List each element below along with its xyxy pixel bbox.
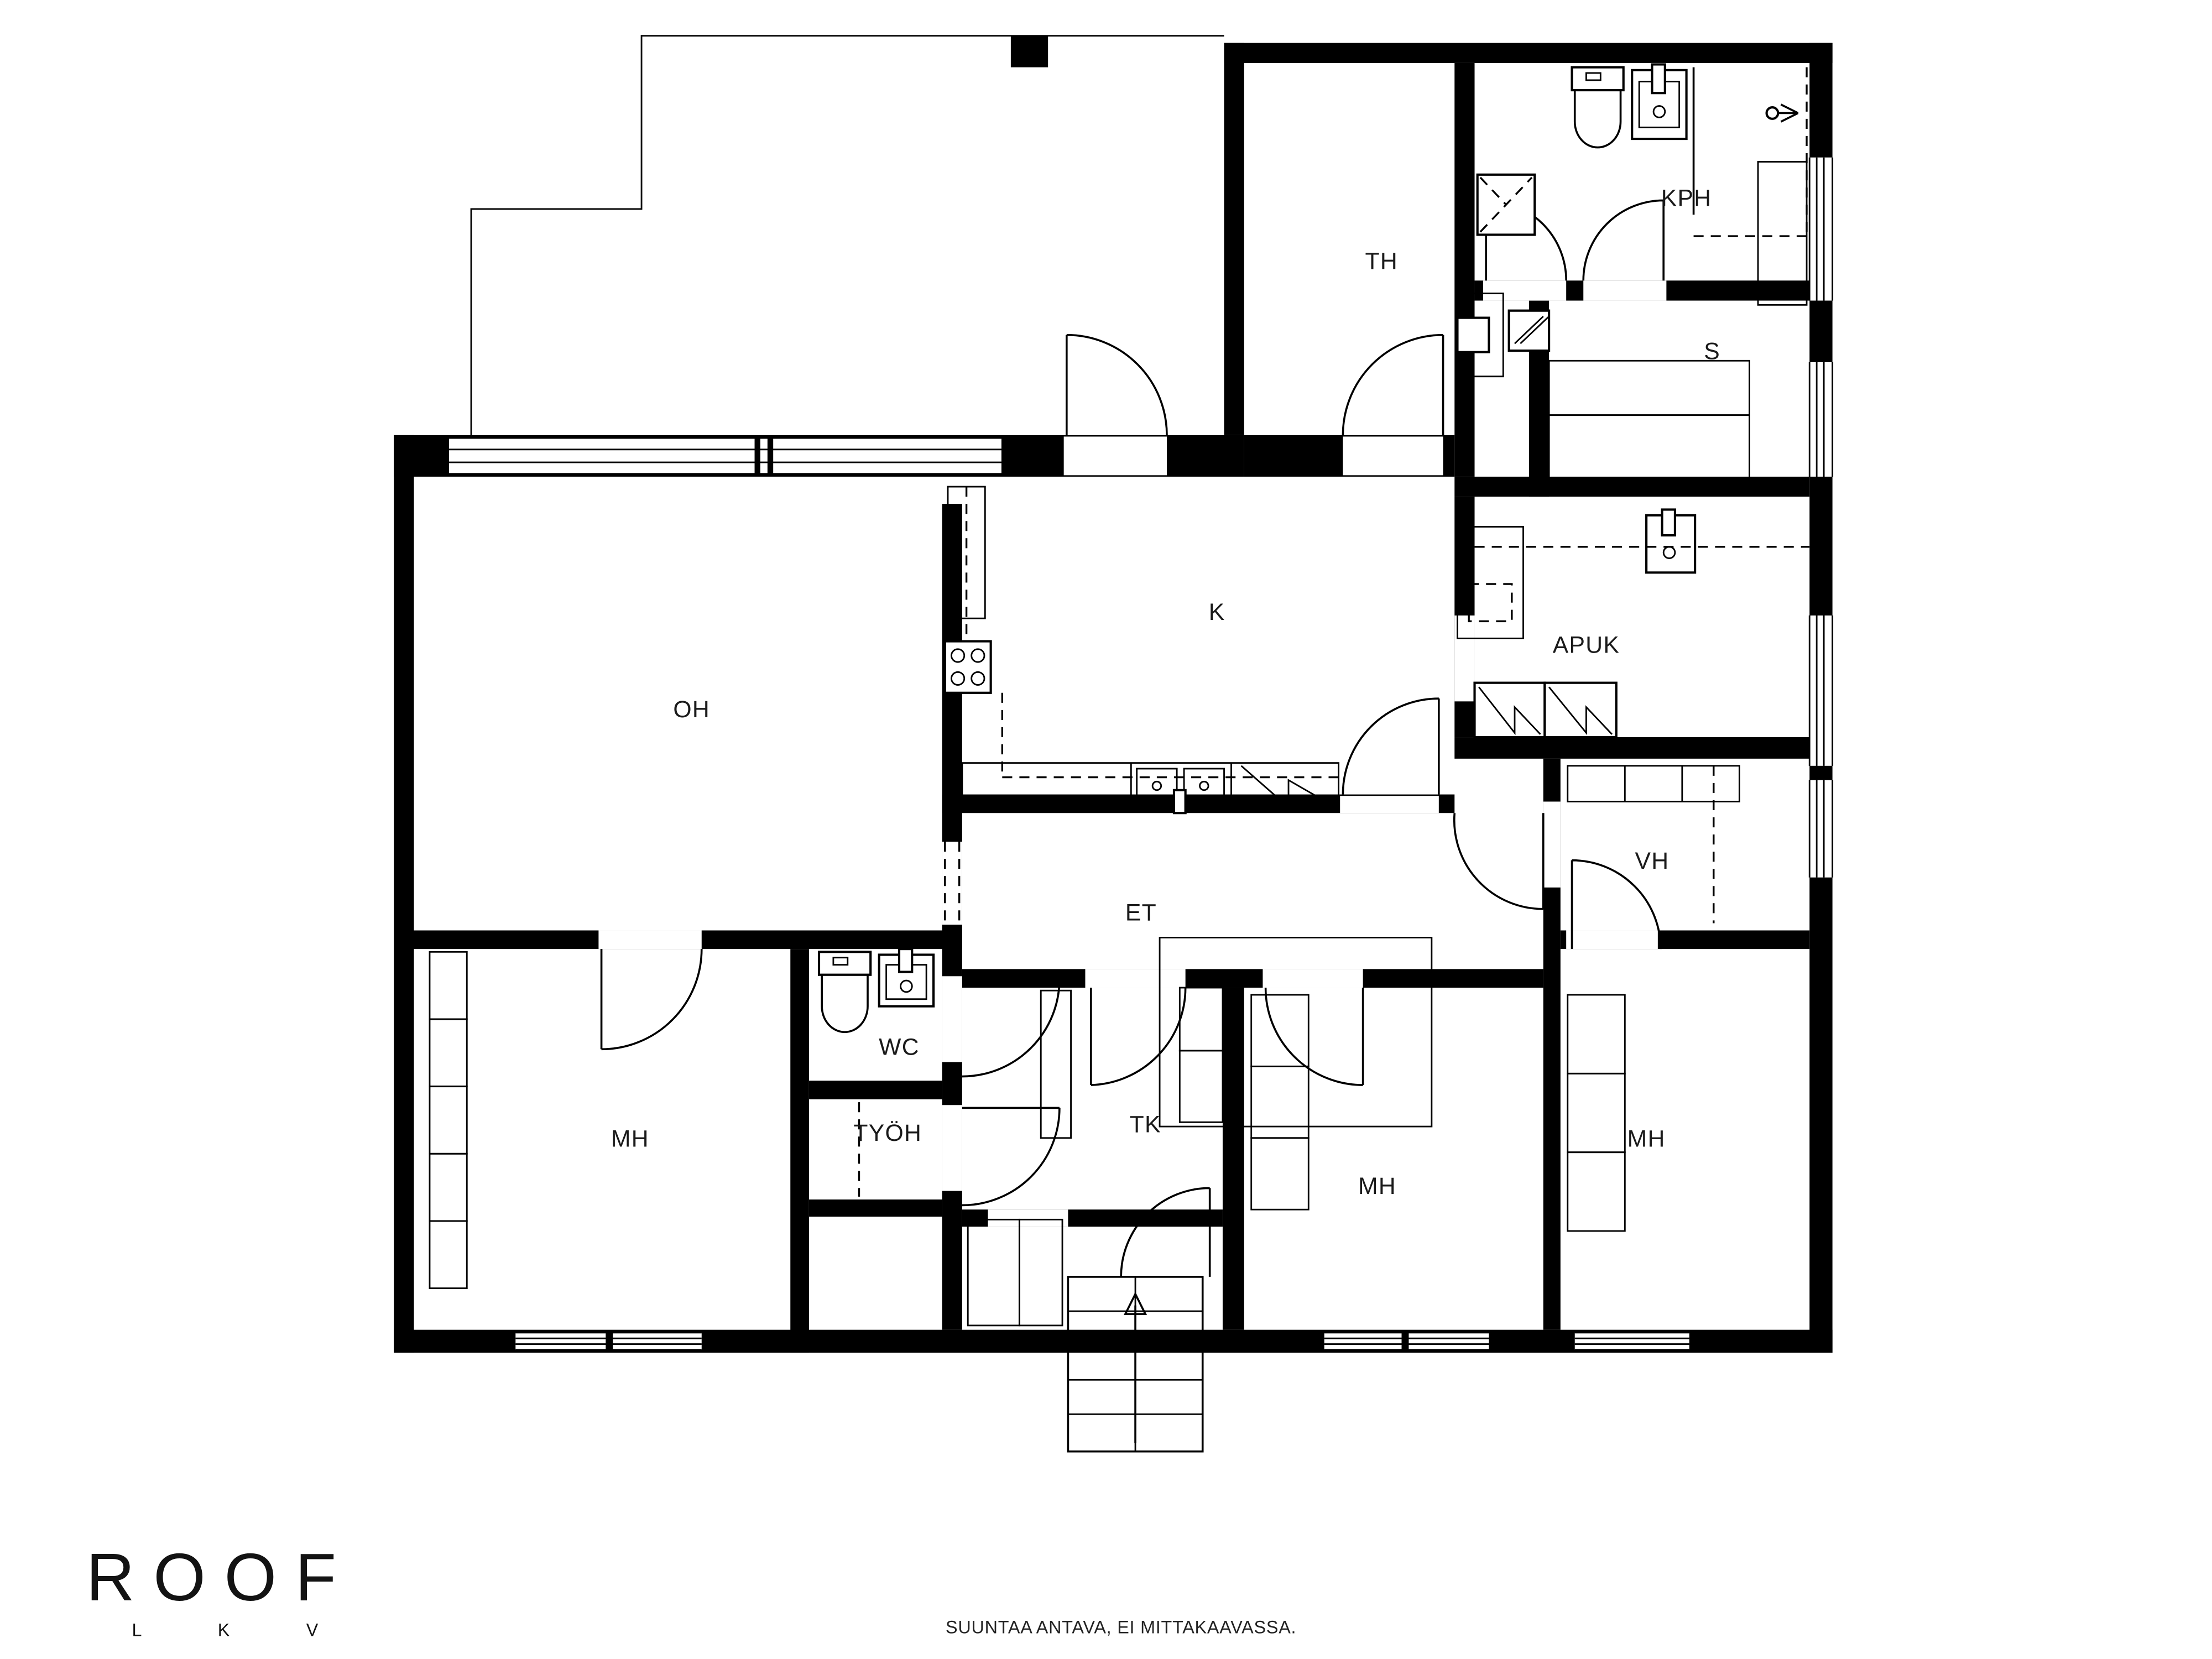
room-label-wc: WC xyxy=(879,1034,920,1061)
room-label-mh-mid: MH xyxy=(1358,1173,1396,1199)
floor-drain-icon xyxy=(1478,175,1535,235)
room-label-k: K xyxy=(1209,599,1225,625)
logo-subtext: L K V xyxy=(132,1620,354,1640)
room-label-tyoh: TYÖH xyxy=(853,1120,922,1146)
logo-text: ROOF xyxy=(86,1540,355,1615)
floor-plan-page: TH KPH S K APUK OH VH ET WC MH TYÖH TK M… xyxy=(0,0,2212,1659)
room-label-th: TH xyxy=(1365,248,1398,275)
floor-plan-drawing: TH KPH S K APUK OH VH ET WC MH TYÖH TK M… xyxy=(0,0,2212,1659)
room-label-apuk: APUK xyxy=(1553,632,1620,658)
window xyxy=(1324,1333,1489,1350)
window xyxy=(1809,780,1832,878)
room-label-s: S xyxy=(1704,338,1720,365)
window xyxy=(1809,615,1832,766)
room-label-oh: OH xyxy=(673,696,710,723)
window xyxy=(515,1333,701,1350)
room-label-kph: KPH xyxy=(1661,185,1712,212)
appliance-icon xyxy=(1475,683,1616,737)
canvas-background xyxy=(0,0,2211,1659)
stove-icon xyxy=(945,641,991,693)
room-label-vh: VH xyxy=(1635,848,1670,874)
disclaimer-text: SUUNTAA ANTAVA, EI MITTAKAAVASSA. xyxy=(946,1617,1296,1637)
room-label-mh-left: MH xyxy=(611,1125,649,1152)
room-label-tk: TK xyxy=(1130,1111,1161,1138)
window xyxy=(1575,1333,1689,1350)
window xyxy=(1809,158,1832,301)
room-label-mh-right: MH xyxy=(1627,1125,1666,1152)
window xyxy=(1809,362,1832,477)
window xyxy=(448,438,1003,474)
room-label-et: ET xyxy=(1125,899,1157,926)
sink-icon xyxy=(1632,64,1686,139)
sink-icon xyxy=(879,949,933,1006)
sauna-stove-icon xyxy=(1509,311,1549,351)
terrace-post xyxy=(1011,36,1048,67)
